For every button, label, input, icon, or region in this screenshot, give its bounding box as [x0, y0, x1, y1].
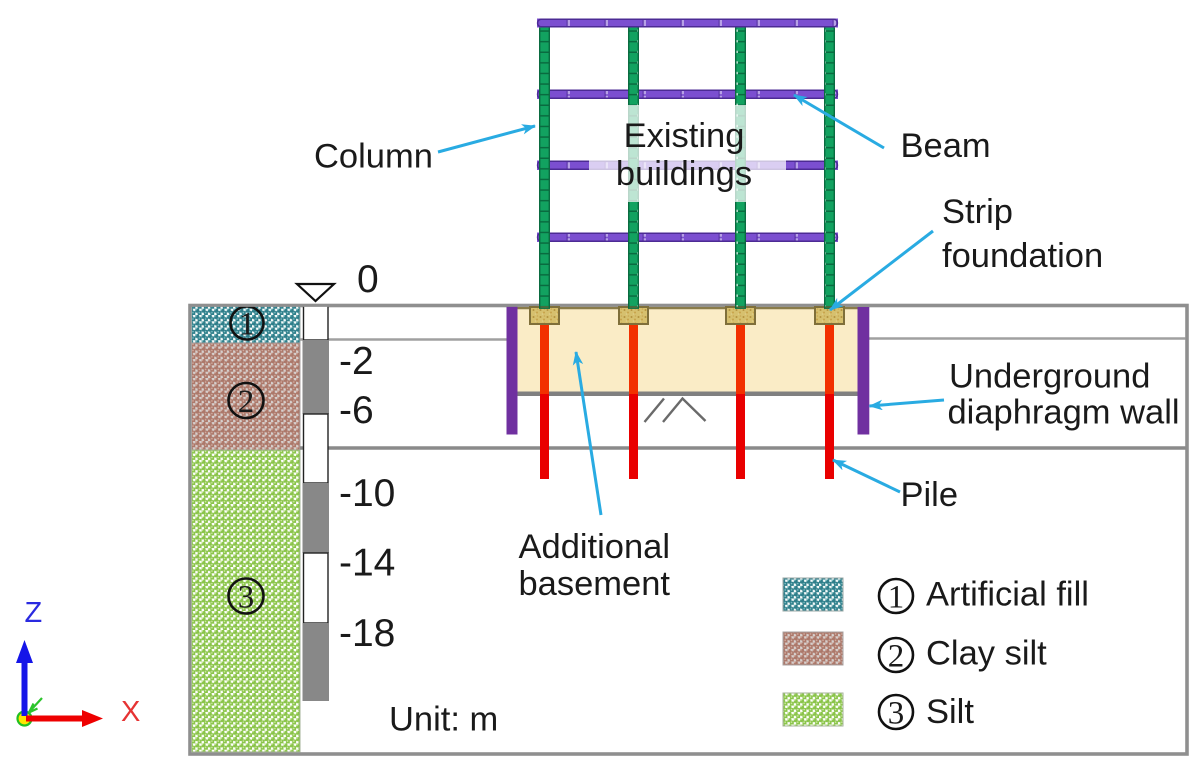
svg-text:Pile: Pile [901, 476, 959, 514]
svg-text:Beam: Beam [901, 127, 991, 165]
svg-text:-6: -6 [339, 389, 374, 432]
svg-text:1: 1 [239, 307, 256, 343]
svg-text:basement: basement [519, 565, 671, 603]
svg-text:Underground: Underground [949, 358, 1150, 396]
svg-text:-2: -2 [339, 340, 374, 383]
svg-text:-10: -10 [339, 472, 395, 515]
svg-text:Silt: Silt [926, 693, 974, 731]
svg-text:X: X [121, 696, 140, 728]
svg-text:2: 2 [888, 639, 905, 675]
svg-text:2: 2 [238, 384, 255, 420]
svg-text:-14: -14 [339, 542, 395, 585]
svg-text:0: 0 [357, 258, 379, 301]
svg-text:Clay silt: Clay silt [926, 635, 1047, 673]
svg-text:Unit: m: Unit: m [389, 701, 498, 739]
svg-text:foundation: foundation [942, 237, 1103, 275]
svg-text:Existing: Existing [624, 117, 745, 155]
svg-text:3: 3 [238, 580, 255, 616]
svg-text:Column: Column [314, 138, 433, 176]
svg-text:buildings: buildings [616, 155, 752, 193]
svg-text:Strip: Strip [942, 193, 1013, 231]
svg-text:Additional: Additional [519, 528, 671, 566]
svg-text:Artificial fill: Artificial fill [926, 576, 1089, 614]
svg-text:diaphragm wall: diaphragm wall [948, 394, 1180, 432]
svg-text:1: 1 [888, 580, 905, 616]
svg-text:3: 3 [888, 696, 905, 732]
svg-text:Z: Z [25, 597, 43, 629]
svg-text:-18: -18 [339, 612, 395, 655]
